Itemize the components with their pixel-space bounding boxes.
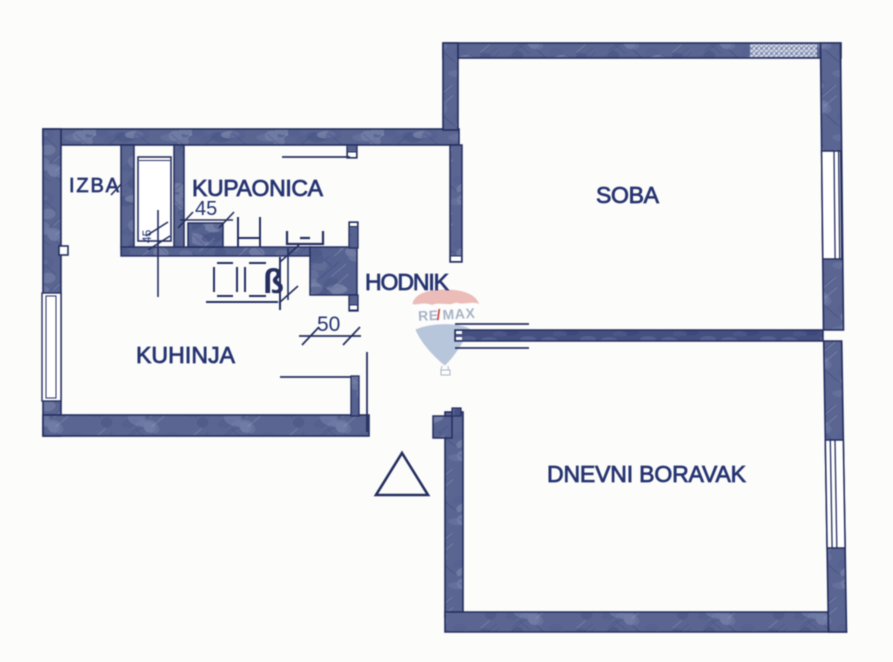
svg-text:KUHINJA: KUHINJA [136, 342, 236, 368]
svg-text:ß: ß [263, 263, 284, 301]
svg-text:HODNIK: HODNIK [365, 269, 450, 295]
svg-text:DNEVNI BORAVAK: DNEVNI BORAVAK [547, 461, 747, 487]
svg-text:50: 50 [317, 313, 340, 336]
svg-text:IZBA: IZBA [69, 175, 120, 197]
svg-text:45: 45 [195, 198, 217, 220]
svg-text:MAX: MAX [442, 305, 476, 323]
svg-text:KUPAONICA: KUPAONICA [192, 175, 324, 201]
svg-text:SOBA: SOBA [596, 182, 660, 208]
